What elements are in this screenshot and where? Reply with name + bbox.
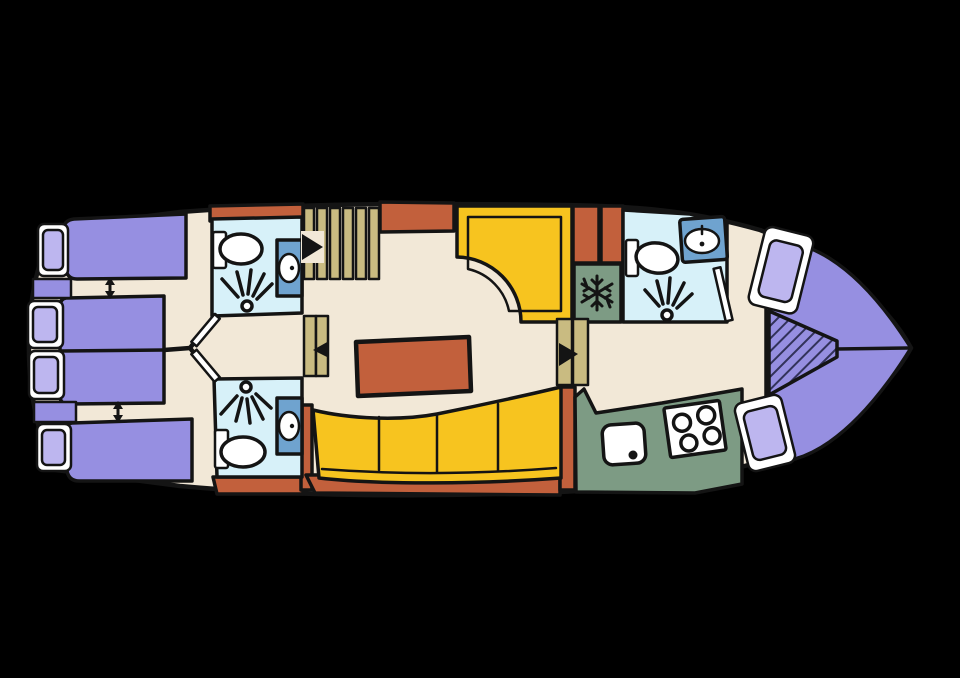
toilet-icon [221,437,265,467]
companionway [557,319,588,385]
pillow [34,357,58,393]
basin-tap-dot [700,242,705,247]
hull-window-4 [37,424,71,471]
stair-tread [343,208,353,279]
hull-window-3 [29,351,64,399]
galley-sink [602,423,647,466]
basin-tap-dot [290,424,294,428]
washbasin-icon [279,412,299,440]
pillow [42,430,65,465]
bathroom-aft-upper [212,217,302,316]
double-bed-split-line [61,350,164,351]
bathroom-forward [623,210,733,322]
stair-tread [369,208,379,279]
basin-tap-dot [290,266,294,270]
companionway-tread [573,319,588,385]
washbasin-icon [279,254,299,282]
deck-plan-canvas [0,0,960,678]
pillow [43,230,63,270]
hull-window-2 [28,301,63,348]
hull-window-1 [38,224,68,276]
cabin-divider-wall [164,348,190,350]
stair-tread [356,208,366,279]
bathroom-aft-lower [214,378,302,477]
stove-icon [664,400,726,457]
step-tread [304,316,316,376]
salon-entry-steps [304,316,329,376]
wall-block-b [601,206,623,263]
pillow [33,307,57,342]
wall-band-bottom-aft [213,477,303,494]
wall-band-top-mid [380,202,454,232]
single-bed-bottom [63,419,192,481]
refrigerator [574,264,621,322]
berth-centerline [837,348,908,349]
stair-tread [330,208,340,279]
single-bed-top [63,214,186,279]
wall-block-a [573,206,599,263]
boat-deck-plan [0,0,960,678]
bed-head-strip-top [33,279,71,298]
bed-head-strip-bottom [34,402,76,422]
toilet-icon [220,234,262,264]
dinette-table [356,337,471,396]
sink-drain-dot [629,451,638,460]
